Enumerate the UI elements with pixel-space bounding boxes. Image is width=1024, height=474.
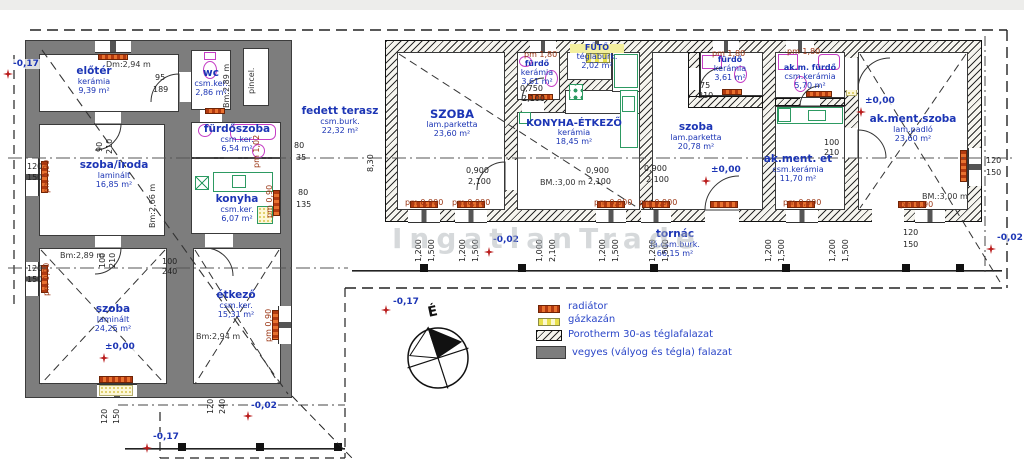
legend-swatch-boiler [538, 318, 560, 326]
dim-text: 90 [95, 130, 104, 152]
dim-text: pm 0,900 [594, 198, 632, 207]
kitchen-cabinet [614, 54, 638, 88]
porch-post [782, 264, 790, 272]
radiator [710, 201, 738, 208]
dim-text: 1,500 [841, 228, 850, 262]
dim-text: 120 [27, 264, 42, 273]
height-note: Dm:2,94 m [106, 60, 151, 69]
dim-text: pm 0,900 [405, 198, 443, 207]
kitchen-appliance [778, 108, 791, 122]
stove-icon [195, 176, 209, 190]
level-value: -0,02 [250, 401, 278, 411]
dim-text: 0,750 [520, 84, 543, 93]
porch-post [650, 264, 658, 272]
top-margin-strip [0, 0, 1024, 10]
legend-label-radiator: radiátor [568, 301, 608, 312]
door-gap-etkezo [205, 234, 233, 248]
compass-rose [398, 318, 479, 399]
watermark: IngatlanTrade [392, 222, 702, 255]
gas-boiler [586, 53, 610, 63]
door-gap-akment-lower [845, 128, 858, 158]
kitchen-sink [808, 110, 826, 121]
window-futo-top [584, 40, 610, 53]
porch-post [902, 264, 910, 272]
dim-text: 135 [296, 200, 311, 209]
door-gap-furdo2 [689, 68, 699, 90]
dim-text: 0,900 [644, 164, 667, 173]
dim-text: 120 [27, 162, 42, 171]
door-gap-szoba1 [505, 160, 517, 190]
level-value: -0,17 [152, 432, 180, 442]
kitchen-sink [622, 96, 635, 112]
dim-text: pm 0,900 [783, 198, 821, 207]
dim-text: 150 [986, 168, 1001, 177]
dim-text: 240 [162, 267, 177, 276]
height-note: Bm:2,66 m [148, 176, 157, 228]
sink-icon [198, 124, 212, 137]
radiator [273, 190, 280, 216]
porch-post [334, 443, 342, 451]
dim-text: 150 [903, 240, 918, 249]
door-gap-akm-furdo [800, 98, 820, 106]
kitchen-appliance [519, 112, 531, 124]
legend-swatch-radiator [538, 305, 560, 313]
dim-text: pm 0,90 [42, 163, 51, 193]
dim-text: 75 [700, 81, 710, 90]
dim-text: pm 0,90 [264, 312, 273, 342]
legend-label-boiler: gázkazán [568, 314, 615, 325]
level-value: ±0,00 [864, 96, 896, 106]
room-szoba-nagy [39, 248, 167, 384]
dim-text: 80 [294, 141, 304, 150]
floor-plan: előtér kerámia 9,39 m² wc csm.ker. 2,86 … [0, 0, 1024, 474]
dim-text: 210 [824, 148, 839, 157]
porch-post [420, 264, 428, 272]
dim-text: pm 0,90 [265, 188, 274, 218]
radiator [960, 150, 967, 182]
window-bottom-6 [915, 209, 945, 223]
window-right-wall [968, 148, 982, 186]
dim-text: pm 0,900 [639, 198, 677, 207]
level-value: -0,17 [12, 59, 40, 69]
window-eloter-top [95, 40, 131, 53]
dim-text: 100 [162, 257, 177, 266]
door-gap-akment-upper [845, 58, 858, 90]
dim-text: 210 [108, 242, 117, 268]
toilet-icon [794, 76, 807, 92]
height-note: Bm:2,94 m [196, 332, 240, 341]
dim-text: 150 [27, 275, 42, 284]
window-bottom-3 [596, 209, 626, 223]
dim-text: 2,100 [468, 177, 491, 186]
dim-text: 210 [698, 91, 713, 100]
sink-icon [778, 54, 798, 70]
dim-text: 120 [986, 156, 1001, 165]
level-value: -0,02 [996, 233, 1024, 243]
dim-text: pm 1,80 [524, 50, 557, 59]
porch-post [518, 264, 526, 272]
dim-text: pm 1,02 [252, 138, 261, 168]
dim-text: 120 [903, 228, 918, 237]
door-gap-akment-tornac [872, 209, 904, 223]
dim-text: 8,30 [366, 142, 375, 172]
level-value: -0,17 [392, 297, 420, 307]
dim-text: 1,500 [777, 228, 786, 262]
room-akment-szoba [858, 52, 968, 210]
radiator [272, 310, 279, 340]
dim-text: 189 [153, 85, 168, 94]
height-note: BM.:3,00 m [540, 178, 586, 187]
dim-text: 35 [296, 153, 306, 162]
window-bottom-5 [786, 209, 818, 223]
dim-text: 100 [824, 138, 839, 147]
dim-text: 2,100 [588, 177, 611, 186]
gas-boiler [99, 385, 133, 396]
porch-post [956, 264, 964, 272]
level-marker-icon [243, 411, 253, 421]
window-bottom-2 [455, 209, 487, 223]
dim-text: 210 [105, 128, 114, 154]
dim-text: 80 [298, 188, 308, 197]
dim-text: pm 1,80 [787, 47, 820, 56]
kitchen-sink [232, 175, 246, 188]
dim-text: 100 [98, 242, 107, 268]
door-gap-eloter [179, 72, 191, 102]
dim-text: 0,900 [586, 166, 609, 175]
label-terasz: fedett terasz csm.burk. 22,32 m² [296, 106, 384, 136]
shower-icon [818, 54, 840, 70]
level-marker-icon [381, 305, 391, 315]
dim-text: 1,200 [828, 228, 837, 262]
dim-text: 150 [27, 173, 42, 182]
dim-text: 1,200 [764, 228, 773, 262]
window-etkezo-right [278, 306, 292, 344]
toilet-icon [204, 52, 216, 60]
legend-label-brick: Porotherm 30-as téglafalazat [568, 329, 713, 340]
window-bottom-4 [641, 209, 671, 223]
porch-post [256, 443, 264, 451]
toilet-icon [545, 70, 558, 87]
dim-text: 120 [206, 388, 215, 414]
north-label: É [426, 303, 439, 321]
radiator [99, 376, 133, 383]
legend-label-mixed: vegyes (vályog és tégla) falazat [572, 347, 732, 358]
dim-text: 2,100 [646, 175, 669, 184]
radiator [205, 108, 225, 114]
dim-text: pm 0,90 [900, 200, 933, 209]
dim-text: 150 [112, 398, 121, 424]
level-value: ±0,00 [104, 342, 136, 352]
stove-icon [569, 84, 583, 100]
dim-text: pm 0,90 [42, 266, 51, 296]
level-marker-icon [3, 69, 13, 79]
door-gap-szoba2-tornac [705, 209, 739, 223]
height-note: Bm:2,89 m [222, 60, 231, 108]
left-porch-edge-line [125, 448, 345, 450]
dim-text: 240 [218, 388, 227, 414]
door-gap-szoba-iroda [95, 112, 121, 124]
level-value: ±0,00 [710, 165, 742, 175]
window-bottom-1 [408, 209, 440, 223]
radiator [722, 89, 742, 95]
toilet-icon [734, 66, 747, 83]
legend-swatch-mixed [536, 346, 566, 359]
porch-post [178, 443, 186, 451]
legend-swatch-brick [536, 330, 562, 341]
dim-text: 120 [100, 398, 109, 424]
level-marker-icon [142, 443, 152, 453]
dim-text: pm 1,80 [712, 49, 745, 58]
dim-text: pm 0,900 [452, 198, 490, 207]
radiator [806, 91, 832, 97]
level-marker-icon [986, 244, 996, 254]
dim-text: 0,900 [466, 166, 489, 175]
room-pince [243, 48, 269, 106]
dim-text: 2,100 [522, 94, 545, 103]
room-szoba1 [397, 52, 505, 210]
dim-text: 95 [155, 73, 165, 82]
toilet-icon [203, 61, 217, 79]
